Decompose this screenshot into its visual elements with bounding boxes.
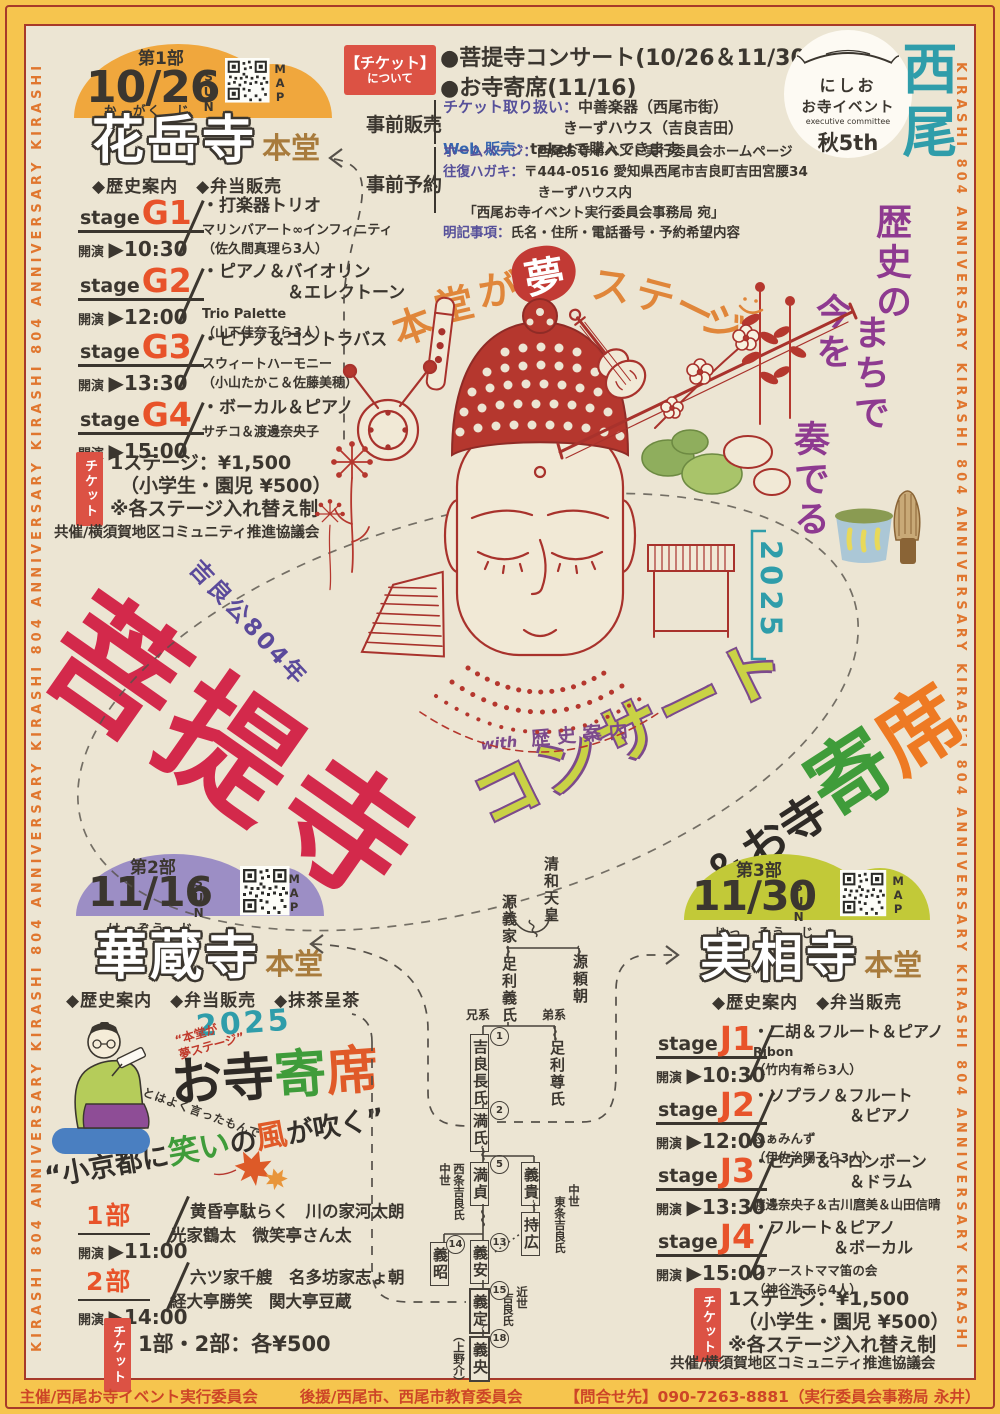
stage-members: （小山たかこ＆佐藤美穂）: [202, 372, 452, 391]
tree-number-15: 15: [490, 1281, 509, 1300]
part3-header: 第3部 11/30 SUN MAP: [684, 852, 930, 920]
tree-number-14: 14: [446, 1235, 465, 1254]
tree-label-kinsei-era: 近世: [514, 1286, 530, 1309]
tree-number-5: 5: [490, 1155, 509, 1174]
title-year: 2025: [754, 540, 788, 641]
tree-label-west-clan: 西条吉良氏: [451, 1163, 467, 1221]
tree-node-yoshihisa: 義央: [469, 1336, 490, 1382]
part2-hall-label: 本堂: [265, 947, 323, 981]
footer-support: 後援/西尾市、西尾市教育委員会: [300, 1385, 523, 1407]
show-row-1: 1部 開演 ▶11:00 黄昏亭駄らく 川の家河太朗 光家鶴太 微笑亭さん太: [78, 1196, 188, 1263]
tree-node-yoritomo: 源頼朝: [570, 954, 591, 1005]
stage-word: stage: [658, 1033, 718, 1055]
tree-label-east-era: 中世: [566, 1184, 582, 1207]
stage-code: J4: [720, 1217, 755, 1256]
stage-program: ・ソプラノ＆フルート ＆ピアノ: [753, 1086, 968, 1126]
part1-price-line2: （小学生・園児 ¥500）: [110, 475, 332, 498]
part2-price: 1部・2部：各¥500: [138, 1332, 331, 1358]
show-performers-2: 経大亭勝笑 関大亭豆蔵: [170, 1288, 405, 1312]
with-word: with: [480, 733, 518, 754]
part3-hall-label: 本堂: [864, 948, 922, 982]
presale-handler-value: 中善楽器（西尾市街）: [578, 98, 728, 116]
presale-handler-label: チケット取り扱い：: [443, 98, 578, 116]
stage-group: スウィートハーモニー: [202, 353, 452, 372]
part2-temple-name: 華蔵寺: [95, 927, 260, 987]
part3-price-line1: 1ステージ：¥1,500: [728, 1288, 950, 1311]
time-word: 開演: [78, 379, 104, 394]
stage-row-j2: stageJ2 開演 ▶12:00 ・ソプラノ＆フルート ＆ピアノ ふぁみんず …: [656, 1090, 1000, 1153]
homepage-label: ホームページ：: [443, 144, 537, 160]
tree-label-elder: 兄系: [466, 1006, 490, 1023]
required-value: 氏名・住所・電話番号・予約希望内容: [511, 225, 741, 241]
tree-node-yoshiie: 源義家: [499, 894, 520, 945]
part1-price-line3: ※各ステージ入れ替え制: [110, 498, 332, 521]
part3-ticket-tab: チケット: [694, 1288, 721, 1362]
stage-row-g1: stageG1 開演 ▶10:30 ・打楽器トリオ マリンバアート∞インフィニテ…: [78, 198, 458, 261]
brand-phrase-2: まちで: [850, 314, 886, 434]
presale-label: 事前販売: [366, 110, 442, 137]
part1-map-label: MAP: [274, 62, 286, 104]
yose-title-green: 寄: [272, 1043, 328, 1106]
stage-code: G1: [142, 193, 192, 232]
stage-code: J3: [720, 1151, 755, 1190]
divider: [434, 100, 436, 144]
tree-node-takauji: 足利尊氏: [547, 1040, 568, 1108]
reserve-label: 事前予約: [366, 170, 442, 197]
stage-group: Ribon: [753, 1044, 968, 1059]
tree-node-osauji: 吉良長氏: [470, 1034, 489, 1112]
stage-program: ・ピアノ＆トロンボーン ＆ドラム: [753, 1152, 968, 1192]
show-performers-1: 黄昏亭駄らく 川の家河太朗: [170, 1198, 405, 1222]
tagline-char: ス: [588, 254, 634, 315]
part1-cohost: 共催/横須賀地区コミュニティ推進協議会: [54, 521, 319, 542]
tree-number-2: 2: [490, 1101, 509, 1120]
stage-group: サチコ＆渡邊奈央子: [202, 421, 452, 440]
ticket-info-box: 【チケット】 について: [344, 45, 436, 95]
part3-temple-name: 実相寺: [700, 929, 859, 987]
part1-temple-name: 花岳寺: [92, 111, 257, 171]
footer-host: 主催/西尾お寺イベント実行委員会: [20, 1385, 258, 1407]
stage-members: （竹内有希ら3人）: [753, 1059, 968, 1078]
tree-number-18: 18: [490, 1329, 509, 1348]
stage-code: J2: [720, 1085, 755, 1124]
part1-hall-label: 本堂: [262, 131, 320, 165]
homepage-value: 西尾お寺イベント実行委員会ホームページ: [537, 144, 793, 160]
stage-code: J1: [720, 1019, 755, 1058]
tree-label-kozuke: （上野介）: [451, 1330, 467, 1388]
event-poster: KIRASHI 804 ANNIVERSARY KIRASHI 804 ANNI…: [0, 0, 1000, 1414]
stage-word: stage: [80, 409, 140, 431]
show-performers-1: 六ツ家千艘 名多坊家志ょ朝: [170, 1264, 405, 1288]
tree-number-1: 1: [490, 1027, 509, 1046]
stage-time: ▶12:00: [109, 305, 188, 329]
show-code: 2部: [78, 1262, 150, 1301]
part2-header: 第2部 11/16 SUN MAP: [76, 852, 324, 916]
tree-label-younger: 弟系: [542, 1006, 566, 1023]
postcard-line2: きーずハウス内: [443, 183, 808, 203]
tree-node-mochihiro: 持広: [521, 1212, 540, 1256]
brand-nishio: 西尾: [897, 40, 952, 166]
brand-phrase-3: 今を: [812, 293, 848, 373]
time-word: 開演: [656, 1137, 682, 1152]
stage-code: G2: [142, 261, 192, 300]
stage-word: stage: [658, 1165, 718, 1187]
stage-group: ふぁみんず: [753, 1128, 968, 1147]
ticket-info-subtitle: について: [344, 72, 436, 85]
stage-word: stage: [658, 1231, 718, 1253]
part1-day: SUN: [202, 70, 215, 115]
stage-program: ・フルート＆ピアノ ＆ボーカル: [753, 1218, 968, 1258]
time-word: 開演: [78, 1247, 104, 1262]
presale-handler2: きーずハウス（吉良吉田）: [443, 118, 743, 139]
postcard-label: 往復ハガキ：: [443, 164, 524, 180]
time-word: 開演: [656, 1269, 682, 1284]
stage-program: ・打楽器トリオ: [202, 196, 452, 217]
stage-program: ・ボーカル＆ピアノ: [202, 398, 452, 419]
brand-phrase-1: 歴史の: [872, 203, 908, 323]
part3-map-label: MAP: [892, 874, 904, 916]
required-label: 明記事項：: [443, 225, 511, 241]
tree-number-13: 13: [490, 1233, 509, 1252]
stage-code: G4: [142, 395, 192, 434]
stage-word: stage: [658, 1099, 718, 1121]
stage-word: stage: [80, 341, 140, 363]
stage-program: ・二胡＆フルート＆ピアノ: [753, 1022, 968, 1042]
tree-node-mitsusada: 満貞: [470, 1162, 489, 1206]
tree-node-seiwa: 清和天皇: [541, 856, 562, 924]
stage-row-j3: stageJ3 開演 ▶13:30 ・ピアノ＆トロンボーン ＆ドラム 渡邊奈央子…: [656, 1156, 1000, 1219]
stage-row-j4: stageJ4 開演 ▶15:00 ・フルート＆ピアノ ＆ボーカル ファーストマ…: [656, 1222, 1000, 1285]
time-word: 開演: [656, 1071, 682, 1086]
show-code: 1部: [78, 1196, 150, 1235]
stage-row-j1: stageJ1 開演 ▶10:30 ・二胡＆フルート＆ピアノ Ribon （竹内…: [656, 1024, 1000, 1087]
stage-word: stage: [80, 207, 140, 229]
stage-group: マリンバアート∞インフィニティ: [202, 219, 452, 238]
time-word: 開演: [78, 245, 104, 260]
ticket-bullet-1: ●菩提寺コンサート(10/26＆11/30): [440, 40, 816, 72]
part2-map-label: MAP: [288, 872, 300, 914]
ticket-info-title: 【チケット】: [344, 55, 436, 72]
show-row-2: 2部 開演 ▶14:00 六ツ家千艘 名多坊家志ょ朝 経大亭勝笑 関大亭豆蔵: [78, 1262, 188, 1329]
part3-features: ◆歴史案内 ◆弁当販売: [712, 988, 902, 1013]
temple-roof-icon: [796, 42, 900, 66]
show-performers-2: 光家鶴太 微笑亭さん太: [170, 1222, 405, 1246]
postcard-line3: 「西尾お寺イベント実行委員会事務局 宛」: [443, 203, 808, 223]
divider: [434, 147, 436, 213]
stage-code: G3: [142, 327, 192, 366]
stage-members: （佐久間真理ら3人）: [202, 238, 452, 257]
stage-group: 渡邊奈央子＆古川麿美＆山田信晴: [753, 1194, 968, 1213]
postcard-value: 〒444-0516 愛知県西尾市吉良町吉田宮腰34: [524, 164, 808, 180]
time-word: 開演: [78, 313, 104, 328]
stage-word: stage: [80, 275, 140, 297]
part3-cohost: 共催/横須賀地区コミュニティ推進協議会: [670, 1352, 935, 1373]
time-word: 開演: [78, 1313, 104, 1328]
part3-price-line2: （小学生・園児 ¥500）: [728, 1311, 950, 1334]
part2-day: SUN: [192, 876, 205, 921]
part1-ticket-tab: チケット: [76, 452, 103, 526]
time-word: 開演: [656, 1203, 682, 1218]
part1-price-line1: 1ステージ：¥1,500: [110, 452, 332, 475]
tree-node-yoshitaka: 義貴: [521, 1162, 540, 1206]
tree-node-yoshisada: 義定: [469, 1288, 490, 1334]
stage-time: ▶10:30: [109, 237, 188, 261]
stage-time: ▶13:30: [109, 371, 188, 395]
tree-node-yoshiyasu: 義安: [470, 1240, 489, 1284]
part3-day: SUN: [792, 880, 805, 925]
tree-node-yoshiuji: 足利義氏: [499, 956, 520, 1024]
tree-node-mitsuuji: 満氏: [470, 1108, 489, 1152]
brand-phrase-4: 奏でる: [790, 420, 826, 540]
poster-footer: 主催/西尾お寺イベント実行委員会 後援/西尾市、西尾市教育委員会 【問合せ先】0…: [26, 1380, 974, 1412]
footer-contact: 【問合せ先】090-7263-8881（実行委員会事務局 永井）: [564, 1385, 980, 1407]
stage-group: ファーストママ笛の会: [753, 1260, 968, 1279]
